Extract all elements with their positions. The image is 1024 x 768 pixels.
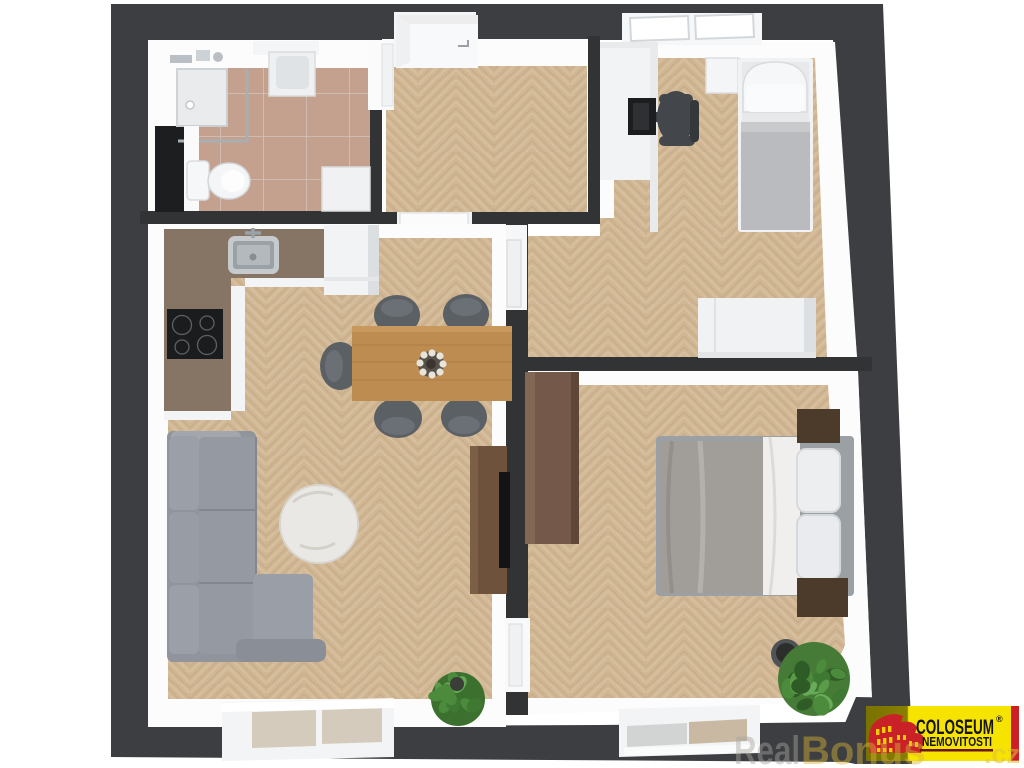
svg-text:.cz: .cz	[984, 739, 1020, 768]
svg-text:NEMOVITOSTI: NEMOVITOSTI	[922, 735, 992, 749]
svg-text:Real: Real	[734, 729, 800, 768]
svg-text:Bonus: Bonus	[801, 729, 925, 768]
svg-text:®: ®	[996, 714, 1003, 724]
